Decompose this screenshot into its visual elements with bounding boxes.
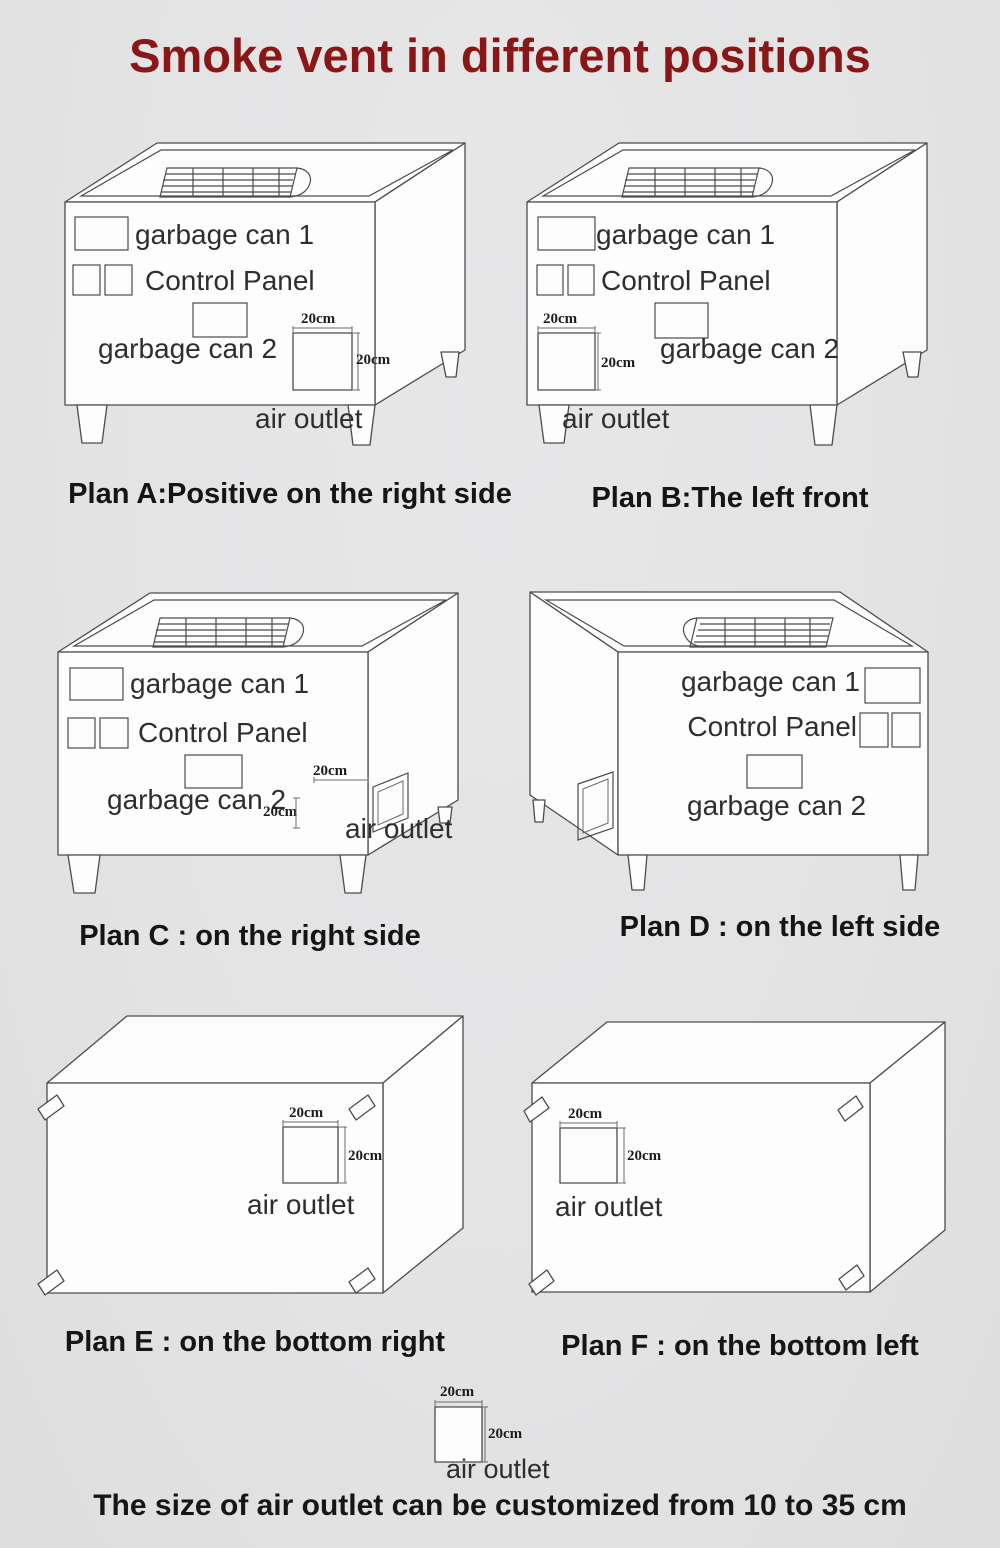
dim-height-label: 20cm: [356, 352, 391, 368]
footer-note: The size of air outlet can be customized…: [35, 1489, 965, 1523]
dim-line-width: [435, 1400, 482, 1407]
plan-e-caption: Plan E : on the bottom right: [40, 1326, 470, 1359]
leg-front-left: [628, 855, 647, 890]
plan-b-caption: Plan B:The left front: [560, 482, 900, 515]
control-panel-label: Control Panel: [687, 711, 857, 742]
leg-front-right: [340, 855, 366, 893]
control-panel-label: Control Panel: [601, 265, 771, 296]
box-bottom-face: [47, 1083, 383, 1293]
dim-height-label: 20cm: [263, 804, 298, 820]
garbage-can-2-label: garbage can 2: [98, 333, 277, 364]
dim-width-label: 20cm: [440, 1384, 475, 1400]
air-outlet-label: air outlet: [247, 1189, 355, 1220]
air-outlet-opening: [293, 333, 352, 390]
garbage-can-1-label: garbage can 1: [130, 668, 309, 699]
dim-height-label: 20cm: [627, 1148, 662, 1164]
control-panel-label: Control Panel: [145, 265, 315, 296]
air-outlet-label: air outlet: [562, 403, 670, 434]
dim-width-label: 20cm: [301, 311, 336, 327]
plan-b-diagram: garbage can 1 Control Panel garbage can …: [517, 140, 947, 452]
plan-a-caption: Plan A:Positive on the right side: [45, 478, 535, 511]
plan-c-caption: Plan C : on the right side: [55, 920, 445, 953]
air-outlet-opening: [283, 1127, 338, 1183]
air-outlet-opening: [560, 1128, 617, 1183]
air-outlet-detail-diagram: 20cm 20cm air outlet: [400, 1375, 570, 1487]
garbage-can-2-label: garbage can 2: [107, 784, 286, 815]
dim-width-label: 20cm: [289, 1105, 324, 1121]
plan-e-diagram: 20cm 20cm air outlet: [37, 1005, 482, 1305]
plan-f-diagram: 20cm 20cm air outlet: [512, 1005, 957, 1305]
plan-d-caption: Plan D : on the left side: [600, 911, 960, 944]
leg-front-left: [68, 855, 100, 893]
control-panel-label: Control Panel: [138, 717, 308, 748]
dim-width-label: 20cm: [313, 763, 348, 779]
plan-e-box: [38, 1016, 463, 1295]
dim-height-label: 20cm: [488, 1426, 523, 1442]
air-outlet-label: air outlet: [555, 1191, 663, 1222]
air-outlet-opening: [538, 333, 595, 390]
garbage-can-1-label: garbage can 1: [681, 666, 860, 697]
plan-f-caption: Plan F : on the bottom left: [540, 1330, 940, 1363]
air-outlet-label: air outlet: [345, 813, 453, 844]
garbage-can-2-label: garbage can 2: [660, 333, 839, 364]
garbage-can-1-label: garbage can 1: [596, 219, 775, 250]
plan-c-diagram: garbage can 1 Control Panel garbage can …: [48, 588, 478, 900]
garbage-can-2-label: garbage can 2: [687, 790, 866, 821]
dim-width-label: 20cm: [568, 1106, 603, 1122]
leg-rear-left: [533, 800, 545, 822]
garbage-can-1-label: garbage can 1: [135, 219, 314, 250]
air-outlet-label: air outlet: [446, 1454, 550, 1484]
page-title: Smoke vent in different positions: [0, 28, 1000, 83]
infographic-page: Smoke vent in different positions garbag…: [0, 0, 1000, 1548]
dim-height-label: 20cm: [601, 355, 636, 371]
leg-front-right: [900, 855, 918, 890]
leg-rear-right: [441, 352, 459, 377]
plan-a-diagram: garbage can 1 Control Panel garbage can …: [55, 140, 485, 452]
plan-d-diagram: garbage can 1 Control Panel garbage can …: [520, 588, 950, 900]
air-outlet-label: air outlet: [255, 403, 363, 434]
leg-front-right: [810, 405, 837, 445]
dim-width-label: 20cm: [543, 311, 578, 327]
leg-front-left: [77, 405, 107, 443]
leg-rear-right: [903, 352, 921, 377]
dim-height-label: 20cm: [348, 1148, 383, 1164]
